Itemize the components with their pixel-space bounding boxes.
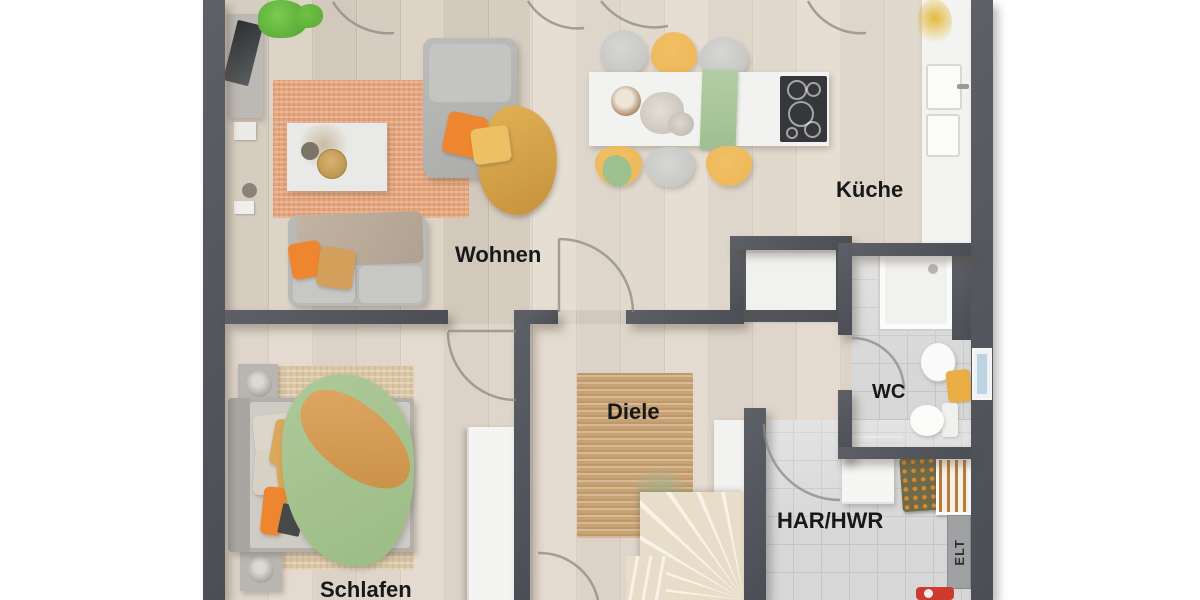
vacuum-robot [916,587,954,600]
kitchen-sink [926,114,960,157]
exterior-wall-left [203,0,225,600]
wall-schlafen-diele [514,310,530,600]
shower [878,253,954,331]
room-label-wohnen: Wohnen [455,242,541,268]
flower-bouquet [668,112,694,136]
bed-headboard [228,398,250,552]
table-vase [301,142,319,160]
room-label-har-hwr: HAR/HWR [777,508,883,534]
wall-har-left [744,408,766,600]
dining-chair-gray [600,30,647,74]
chest-freezer [746,250,836,310]
toilet-tank [942,403,958,437]
sofa-tan-pillow [315,246,356,291]
wall-niche-left [730,248,744,312]
deco-books [234,122,256,140]
table-runner [700,69,739,150]
table-lamp [246,371,272,397]
table-lamp [248,557,274,583]
washing-machine [842,456,894,504]
toilet-bowl [910,405,944,436]
potted-plant-leaf [295,4,323,28]
wall-wohnen-schlafen [225,310,448,324]
towel-yellow [945,369,972,403]
wc-duct [952,256,971,340]
deco-books [234,201,254,214]
wall-wc-top [852,243,971,256]
cooktop [780,76,827,142]
room-label-wc: WC [872,381,905,404]
wall-niche-top [730,236,852,250]
wall-stub [530,310,558,324]
stair-steps [626,556,666,600]
chaise-cushion [429,44,511,102]
room-label-diele: Diele [607,399,660,425]
room-label-schlafen: Schlafen [320,577,412,600]
yellow-pillow [470,125,513,166]
electrical-cabinet: ELT [947,515,971,589]
dining-chair-yellow [651,32,697,74]
floor-plan: ELT Küche Wohnen Diele WC HAR/HWR [0,0,1200,600]
drying-rack [936,457,971,515]
vacuum-robot-detail [924,589,933,598]
deco-vase [242,183,257,198]
hall-cabinet [714,420,744,502]
room-label-kueche: Küche [836,177,903,203]
exterior-wall-right [971,0,993,600]
laundry-basket [899,456,940,512]
wall-wc-bottom [838,447,971,459]
room-label-elt: ELT [952,539,967,566]
wardrobe [467,427,514,600]
towel-rail [850,436,902,444]
wall-wohnen-diele [626,310,744,324]
wc-window [972,348,992,400]
wall-wc-left-upper [838,243,852,335]
faucet [957,84,969,89]
gold-tray [317,149,347,179]
sofa-seat-cushion [359,266,422,303]
deco-bowl [611,86,641,116]
